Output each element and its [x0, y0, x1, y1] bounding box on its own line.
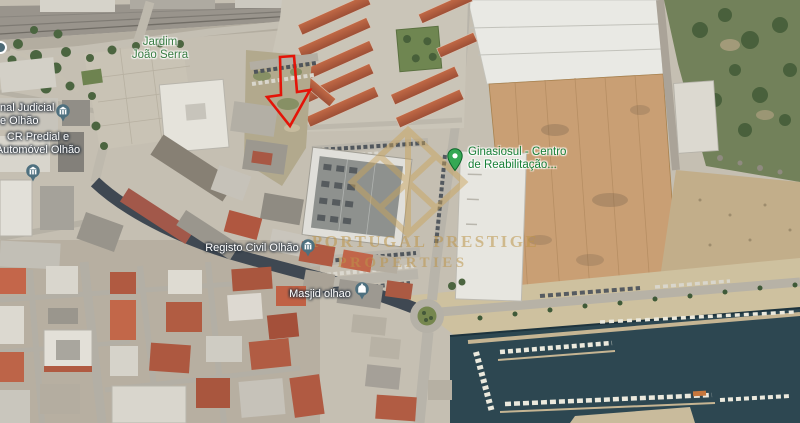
market-building — [302, 147, 412, 247]
satellite-map[interactable]: PORTUGAL PRESTIGE PROPERTIES Jardim João… — [0, 0, 800, 423]
label-line: de Reabilitação... — [468, 159, 588, 172]
satellite-imagery — [0, 0, 800, 423]
label-tribunal-judicial[interactable]: nal Judicial e Olhão — [0, 102, 60, 128]
label-line: e Olhão — [0, 115, 60, 128]
label-line: Automóvel Olhão — [0, 144, 86, 157]
label-ginasiosul[interactable]: Ginasiosul - Centro de Reabilitação... — [468, 146, 588, 172]
label-line: Jardim — [100, 36, 220, 49]
label-line: Registo Civil Olhão — [192, 242, 312, 255]
label-line: João Serra — [100, 49, 220, 62]
label-line: nal Judicial — [0, 102, 60, 115]
label-line: CR Predial e — [0, 131, 86, 144]
cr-predial-pin government-building-pin[interactable] — [26, 164, 40, 182]
label-line: Ginasiosul - Centro — [468, 146, 588, 159]
label-cr-predial[interactable]: CR Predial e Automóvel Olhão — [0, 131, 86, 157]
ginasiosul-building — [455, 151, 526, 301]
label-jardim-joao-serra[interactable]: Jardim João Serra — [100, 36, 220, 62]
label-registo-civil[interactable]: Registo Civil Olhão — [192, 242, 312, 255]
label-masjid-olhao[interactable]: Masjid olhao — [272, 288, 368, 301]
label-line: Masjid olhao — [272, 288, 368, 301]
ginasiosul-pin green-place-pin[interactable] — [447, 148, 463, 172]
